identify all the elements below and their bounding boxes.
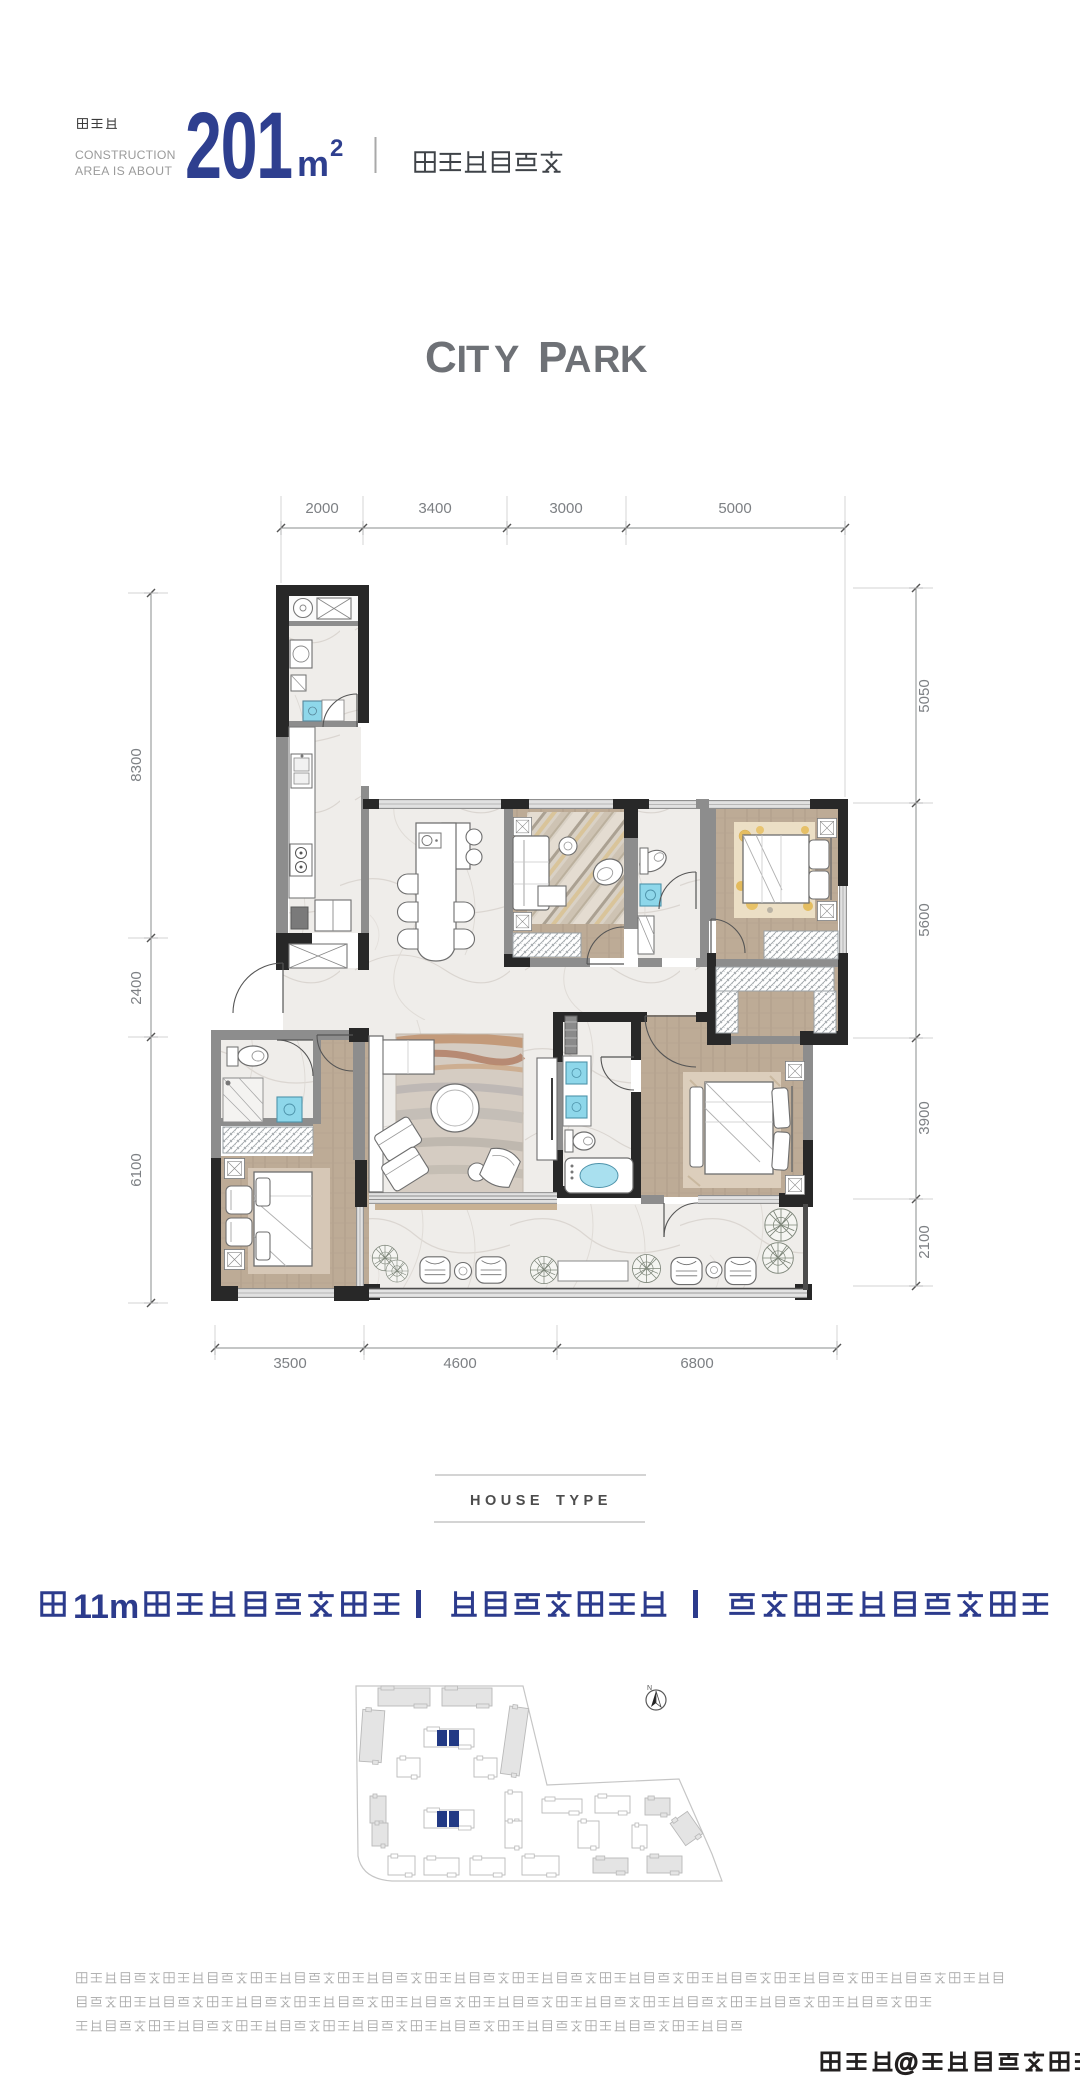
svg-text:201: 201 bbox=[185, 93, 292, 198]
svg-text:m: m bbox=[297, 143, 329, 184]
svg-text:R: R bbox=[593, 339, 620, 381]
svg-text:HOUSE: HOUSE bbox=[470, 1493, 544, 1509]
svg-text:3400: 3400 bbox=[418, 500, 451, 517]
svg-text:4600: 4600 bbox=[443, 1355, 476, 1372]
svg-text:2000: 2000 bbox=[305, 500, 338, 517]
svg-text:K: K bbox=[620, 339, 648, 381]
svg-text:2: 2 bbox=[330, 135, 343, 162]
svg-text:AREA IS ABOUT: AREA IS ABOUT bbox=[75, 164, 172, 178]
svg-text:6100: 6100 bbox=[128, 1153, 145, 1186]
svg-text:3000: 3000 bbox=[549, 500, 582, 517]
svg-text:8300: 8300 bbox=[128, 748, 145, 781]
svg-text:CONSTRUCTION: CONSTRUCTION bbox=[75, 148, 176, 162]
svg-text:Y: Y bbox=[494, 339, 519, 381]
svg-text:T: T bbox=[466, 339, 489, 381]
svg-text:N: N bbox=[647, 1685, 652, 1692]
svg-text:2100: 2100 bbox=[916, 1225, 933, 1258]
svg-text:5050: 5050 bbox=[916, 679, 933, 712]
svg-text:6800: 6800 bbox=[680, 1355, 713, 1372]
svg-text:P: P bbox=[538, 333, 567, 382]
svg-text:5000: 5000 bbox=[718, 500, 751, 517]
svg-text:C: C bbox=[425, 333, 457, 382]
svg-text:2400: 2400 bbox=[128, 971, 145, 1004]
svg-text:3500: 3500 bbox=[273, 1355, 306, 1372]
svg-text:@: @ bbox=[894, 2049, 918, 2077]
svg-text:3900: 3900 bbox=[916, 1101, 933, 1134]
svg-text:5600: 5600 bbox=[916, 903, 933, 936]
svg-text:TYPE: TYPE bbox=[556, 1493, 612, 1509]
svg-text:A: A bbox=[564, 339, 591, 381]
svg-text:11m: 11m bbox=[73, 1588, 139, 1626]
